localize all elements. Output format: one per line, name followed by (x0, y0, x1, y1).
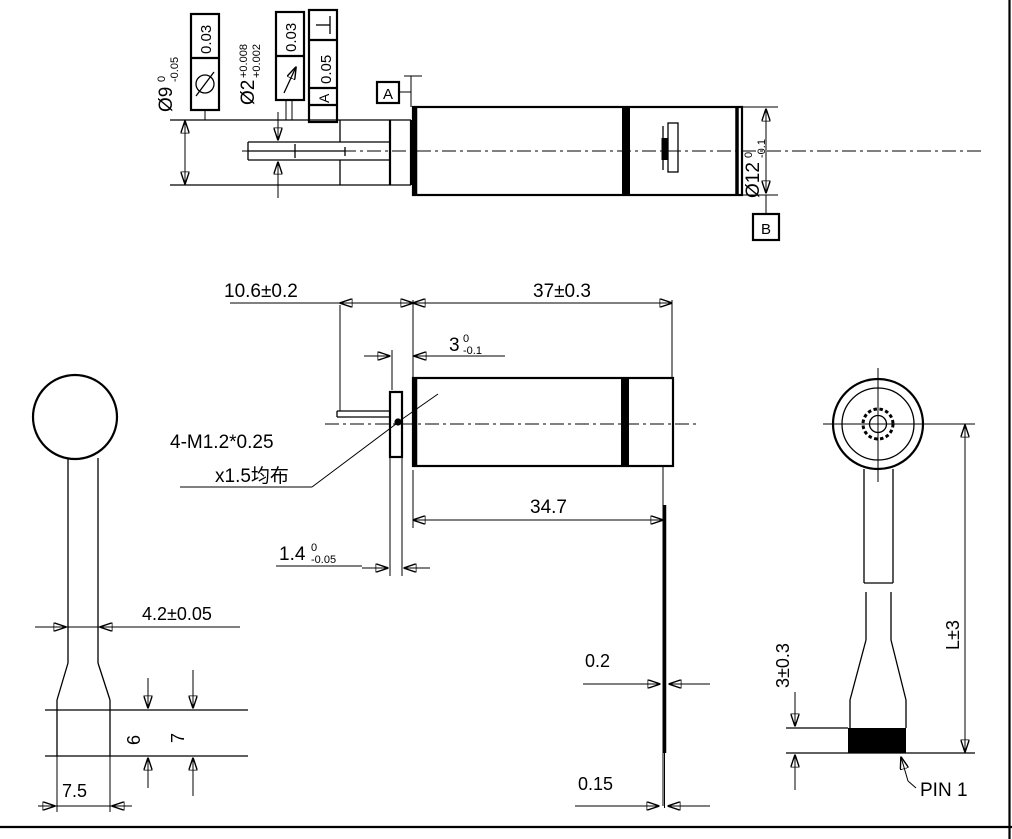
plate-thickness-text: 1.4 (279, 544, 306, 565)
circular-runout-icon (284, 67, 296, 93)
pin-tip-thickness-text: 0.15 (578, 774, 613, 794)
cylindricity-icon (196, 72, 214, 96)
fcf-cylindricity-value: 0.03 (198, 25, 215, 54)
connector-block (848, 728, 906, 753)
dia9-lower-tol: -0.05 (169, 57, 181, 82)
fcf-perpendicularity: 0.05 A (309, 10, 337, 122)
gearhead-face-circle (33, 375, 117, 459)
pin1-callout: PIN 1 (901, 757, 968, 801)
dia12-lower-tol: -0.1 (756, 139, 768, 158)
dim-block-height: 3±0.3 (773, 643, 795, 790)
plate-lower-tol: -0.05 (311, 554, 336, 566)
pin-thickness-text: 0.2 (585, 651, 610, 671)
dim-pin-tip-thickness: 0.15 (575, 774, 710, 806)
sheet-border (0, 0, 1012, 839)
boss-length-text: 3 (449, 335, 460, 356)
dim-7-5-text: 7.5 (62, 781, 87, 801)
dim-boss-length: 3 0 -0.1 (364, 333, 505, 357)
dia9-upper-tol: 0 (156, 76, 168, 82)
datum-a-label: A (383, 86, 393, 103)
case-length-text: 34.7 (530, 497, 567, 518)
dim-lead-length: L±3 (943, 425, 965, 752)
perpendicularity-icon (316, 16, 330, 34)
dia2-upper-tol: +0.008 (238, 44, 250, 78)
drawing-sheet: Ø9 0 -0.05 0.03 Ø2 +0.008 +0.002 (0, 0, 1012, 839)
dim-7-text: 7 (168, 733, 188, 743)
plate-upper-tol: 0 (311, 542, 317, 554)
top-side-view: Ø9 0 -0.05 0.03 Ø2 +0.008 +0.002 (156, 10, 985, 240)
engineering-drawing: Ø9 0 -0.05 0.03 Ø2 +0.008 +0.002 (0, 0, 1012, 839)
terminal-pin-side: 0.2 0.15 (575, 505, 710, 808)
dim-dia2: Ø2 +0.008 +0.002 (238, 44, 278, 198)
dim-shaft-flat-width: 4.2±0.05 (35, 604, 240, 627)
dim-dia12: Ø12 0 -0.1 (743, 109, 768, 198)
datum-a-flag: A (377, 76, 422, 107)
gearhead-length-text: 10.6±0.2 (224, 281, 298, 302)
dia2-label: Ø2 (238, 80, 259, 105)
lead-length-text: L±3 (943, 620, 963, 650)
body-length-text: 37±0.3 (533, 281, 591, 302)
rear-right-view: 3±0.3 L±3 PIN 1 (773, 368, 975, 801)
thread-note-line2: x1.5均布 (215, 465, 289, 487)
boss-upper-tol: 0 (463, 333, 469, 345)
fcf-runout-value: 0.03 (283, 23, 300, 52)
fcf-runout: 0.03 (276, 12, 304, 120)
block-height-text: 3±0.3 (773, 643, 793, 688)
main-side-view: 10.6±0.2 37±0.3 3 0 -0.1 34.7 1.4 0 (170, 281, 700, 806)
fcf-perpendicularity-value: 0.05 (318, 55, 335, 84)
dia12-upper-tol: 0 (743, 152, 755, 158)
dia12-label: Ø12 (743, 162, 764, 198)
dia9-label: Ø9 (156, 87, 177, 112)
datum-b-label: B (761, 221, 771, 238)
datum-b-flag: B (753, 195, 779, 240)
shaft-flat-width-text: 4.2±0.05 (142, 604, 212, 624)
dim-pin-thickness: 0.2 (583, 651, 710, 684)
fcf-perpendicularity-datum: A (316, 93, 332, 103)
dim-6: 6 (124, 678, 148, 788)
dim-plate-thickness: 1.4 0 -0.05 (276, 542, 430, 568)
dim-gearhead-length: 10.6±0.2 (224, 281, 413, 303)
boss-lower-tol: -0.1 (463, 345, 482, 357)
dim-6-text: 6 (124, 735, 144, 745)
dia2-lower-tol: +0.002 (251, 44, 263, 78)
pin1-label: PIN 1 (920, 780, 968, 801)
thread-note-line1: 4-M1.2*0.25 (170, 432, 274, 453)
thread-note: 4-M1.2*0.25 x1.5均布 (170, 394, 438, 487)
fcf-cylindricity: 0.03 (191, 14, 219, 120)
dim-7: 7 (168, 670, 193, 796)
dim-case-length: 34.7 (413, 497, 663, 520)
dim-body-length: 37±0.3 (413, 281, 672, 303)
dim-7-5: 7.5 (38, 781, 132, 806)
